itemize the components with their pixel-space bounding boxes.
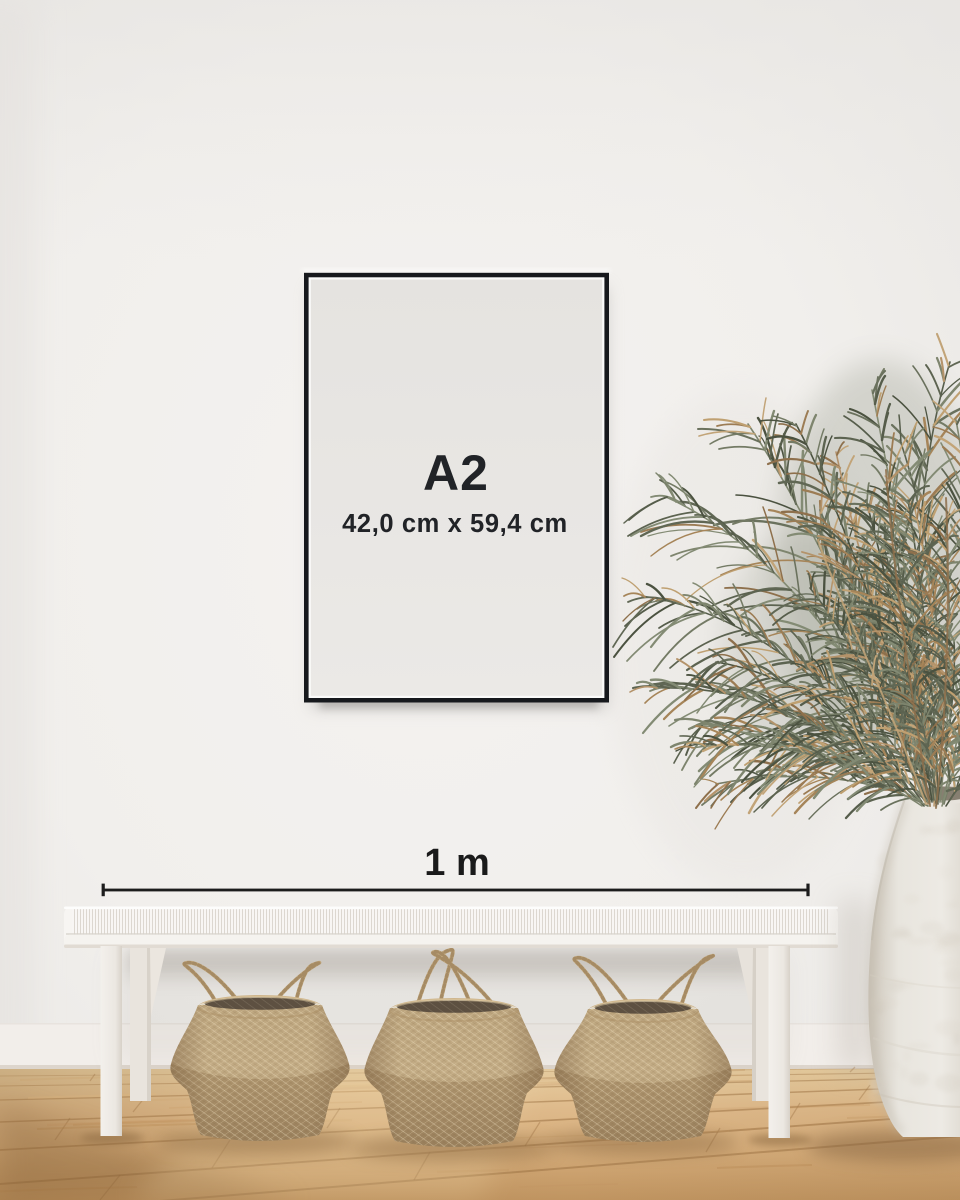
svg-text:42,0 cm x 59,4 cm: 42,0 cm x 59,4 cm	[342, 510, 568, 538]
svg-text:A2: A2	[423, 445, 489, 501]
svg-text:1 m: 1 m	[424, 842, 489, 884]
